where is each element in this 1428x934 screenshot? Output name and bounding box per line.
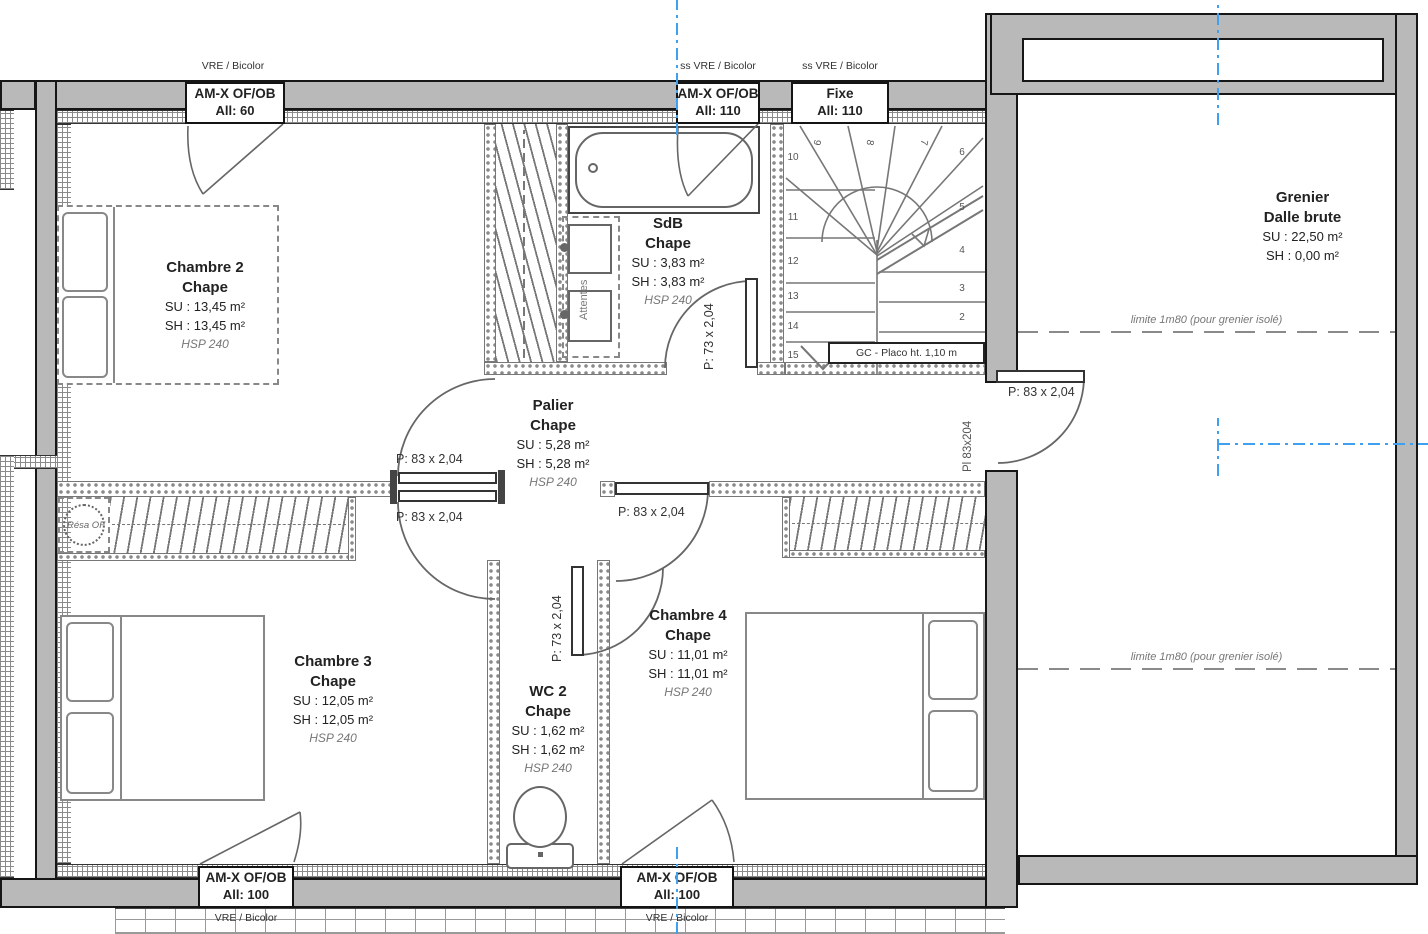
room-finish: Chape xyxy=(105,278,305,298)
limite-label-2: limite 1m80 (pour grenier isolé) xyxy=(1018,651,1395,663)
room-su: SU : 13,45 m² xyxy=(105,299,305,316)
room-label-chambre4: Chambre 4 Chape SU : 11,01 m² SH : 11,01… xyxy=(588,606,788,700)
window-swing-bottom-left xyxy=(200,812,301,864)
floor-plan-canvas: Résa OF Attentes 2 xyxy=(0,0,1428,934)
door-label-grenier: P: 83 x 2,04 xyxy=(1008,385,1075,399)
door-leaf-wc2 xyxy=(571,566,584,656)
room-su: SU : 5,28 m² xyxy=(473,437,633,454)
room-sh: SH : 1,62 m² xyxy=(488,742,608,759)
gc-label: GC - Placo ht. 1,10 m xyxy=(856,347,957,359)
door-label-wc2: P: 73 x 2,04 xyxy=(550,572,564,662)
stair-guard-wall: GC - Placo ht. 1,10 m xyxy=(828,342,985,364)
stair-number: 5 xyxy=(959,202,965,213)
door-label-chambre3: P: 83 x 2,04 xyxy=(396,510,463,524)
room-finish: Chape xyxy=(488,702,608,722)
room-sh: SH : 13,45 m² xyxy=(105,318,305,335)
window-allege-label: All: 60 xyxy=(215,103,254,119)
room-sh: SH : 0,00 m² xyxy=(1210,248,1395,265)
window-head-label: ss VRE / Bicolor xyxy=(770,60,910,72)
room-sh: SH : 11,01 m² xyxy=(588,666,788,683)
room-hsp: HSP 240 xyxy=(473,475,633,491)
room-su: SU : 3,83 m² xyxy=(593,255,743,272)
stair-number: 10 xyxy=(787,152,799,163)
room-sh: SH : 3,83 m² xyxy=(593,274,743,291)
stair-number: 14 xyxy=(787,321,799,332)
window-allege-label: All: 110 xyxy=(817,103,863,119)
window-swing-top-mid xyxy=(677,124,758,196)
stair-number: 8 xyxy=(863,139,875,147)
stair-number: 12 xyxy=(787,256,799,267)
stair-number: 3 xyxy=(959,283,965,294)
room-label-sdb: SdB Chape SU : 3,83 m² SH : 3,83 m² HSP … xyxy=(593,214,743,308)
room-finish: Chape xyxy=(233,672,433,692)
stair-number: 13 xyxy=(787,291,799,302)
room-label-palier: Palier Chape SU : 5,28 m² SH : 5,28 m² H… xyxy=(473,396,633,490)
centerline-horizontal-grenier xyxy=(1218,443,1428,445)
door-frame-west xyxy=(390,470,397,504)
room-hsp: HSP 240 xyxy=(588,685,788,701)
window-top-fixe: Fixe All: 110 xyxy=(791,82,889,124)
stair-number: 7 xyxy=(917,139,929,147)
room-name: Chambre 4 xyxy=(588,606,788,626)
room-label-chambre2: Chambre 2 Chape SU : 13,45 m² SH : 13,45… xyxy=(105,258,305,352)
window-head-label: VRE / Bicolor xyxy=(163,60,303,72)
room-finish: Dalle brute xyxy=(1210,208,1395,228)
window-allege-label: All: 100 xyxy=(223,887,269,903)
door-label-sdb: P: 73 x 2,04 xyxy=(702,280,716,370)
room-name: Palier xyxy=(473,396,633,416)
room-finish: Chape xyxy=(593,234,743,254)
room-name: Grenier xyxy=(1210,188,1395,208)
linework-overlay: 2 3 4 5 6 7 8 9 10 11 12 13 14 15 xyxy=(0,0,1428,934)
centerline-vertical-main-bottom xyxy=(676,845,678,934)
stair-number: 4 xyxy=(959,245,965,256)
room-hsp: HSP 240 xyxy=(488,761,608,777)
attentes-label: Attentes xyxy=(578,250,590,320)
stair-number: 2 xyxy=(959,312,965,323)
room-hsp: HSP 240 xyxy=(233,731,433,747)
door-leaf-grenier xyxy=(996,370,1085,383)
room-finish: Chape xyxy=(588,626,788,646)
stair-number: 15 xyxy=(787,350,799,361)
window-type-label: AM-X OF/OB xyxy=(195,86,276,103)
door-arc-chambre4 xyxy=(616,489,708,581)
door-label-chambre4: P: 83 x 2,04 xyxy=(618,505,685,519)
room-su: SU : 1,62 m² xyxy=(488,723,608,740)
window-top-left: AM-X OF/OB All: 60 xyxy=(185,82,285,124)
room-sh: SH : 5,28 m² xyxy=(473,456,633,473)
room-su: SU : 22,50 m² xyxy=(1210,229,1395,246)
window-head-label: ss VRE / Bicolor xyxy=(648,60,788,72)
window-foot-label: VRE / Bicolor xyxy=(176,912,316,924)
room-su: SU : 11,01 m² xyxy=(588,647,788,664)
stairs xyxy=(786,126,985,374)
limite-line-2 xyxy=(1018,668,1395,670)
window-swing-top-left xyxy=(188,124,283,194)
window-allege-label: All: 110 xyxy=(695,103,741,119)
window-swing-bottom-mid xyxy=(622,800,734,864)
door-label-chambre2: P: 83 x 2,04 xyxy=(396,452,463,466)
room-name: Chambre 2 xyxy=(105,258,305,278)
centerline-vertical-grenier-top xyxy=(1217,0,1219,125)
window-top-mid: AM-X OF/OB All: 110 xyxy=(676,82,760,124)
limite-label-1: limite 1m80 (pour grenier isolé) xyxy=(1018,314,1395,326)
room-label-grenier: Grenier Dalle brute SU : 22,50 m² SH : 0… xyxy=(1210,188,1395,265)
window-type-label: AM-X OF/OB xyxy=(678,86,759,103)
stair-number: 11 xyxy=(788,212,799,223)
room-hsp: HSP 240 xyxy=(593,293,743,309)
room-finish: Chape xyxy=(473,416,633,436)
centerline-vertical-main-top xyxy=(676,0,678,135)
room-name: Chambre 3 xyxy=(233,652,433,672)
door-leaf-chambre3 xyxy=(398,490,497,502)
room-su: SU : 12,05 m² xyxy=(233,693,433,710)
centerline-vertical-grenier-mid xyxy=(1217,418,1219,476)
door-leaf-sdb xyxy=(745,278,758,368)
room-sh: SH : 12,05 m² xyxy=(233,712,433,729)
room-label-chambre3: Chambre 3 Chape SU : 12,05 m² SH : 12,05… xyxy=(233,652,433,746)
door-label-pl: Pl 83x204 xyxy=(962,390,974,472)
room-hsp: HSP 240 xyxy=(105,337,305,353)
window-bottom-left: AM-X OF/OB All: 100 xyxy=(198,866,294,908)
window-type-label: AM-X OF/OB xyxy=(206,870,287,887)
window-type-label: Fixe xyxy=(826,86,853,103)
stair-number: 6 xyxy=(959,147,965,158)
room-name: SdB xyxy=(593,214,743,234)
limite-line-1 xyxy=(1018,331,1395,333)
